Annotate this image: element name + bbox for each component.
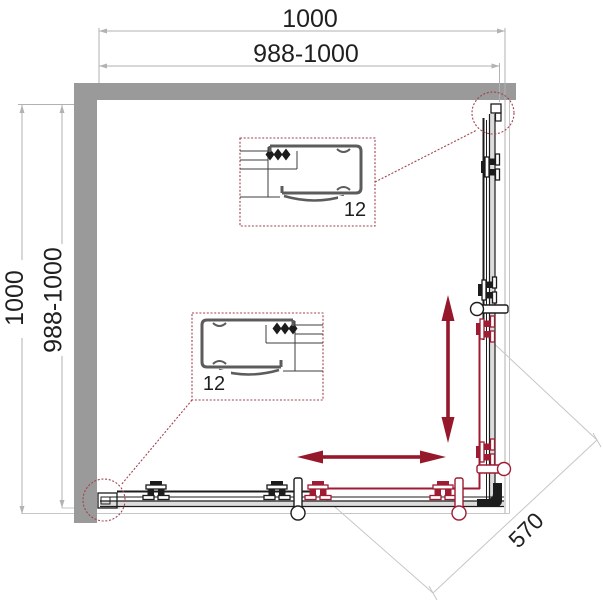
profile-section-lower xyxy=(202,320,323,375)
handle-right-red xyxy=(477,463,511,476)
detail-box-upper: 12 xyxy=(240,138,375,226)
leader-lower xyxy=(121,400,192,485)
diagram-canvas: 1000 988-1000 1000 988-1000 570 xyxy=(0,0,603,600)
detail-label-lower: 12 xyxy=(203,373,225,395)
handle-bottom-black xyxy=(291,478,305,520)
detail-box-lower: 12 xyxy=(192,313,323,400)
detail-label-upper: 12 xyxy=(344,199,366,221)
slide-arrow-vertical xyxy=(442,295,455,443)
dim-left-inner: 988-1000 xyxy=(40,105,68,508)
leader-upper xyxy=(375,130,477,182)
dim-top-inner-label: 988-1000 xyxy=(253,40,359,68)
profile-section-upper xyxy=(240,146,361,201)
wall-top xyxy=(74,83,516,100)
dim-top-outer-label: 1000 xyxy=(282,5,338,33)
dim-left-inner-label: 988-1000 xyxy=(40,247,68,353)
wall-left xyxy=(74,83,97,523)
handle-right-black xyxy=(471,303,509,316)
slide-arrow-horizontal xyxy=(297,451,446,464)
dim-diagonal-opening: 570 xyxy=(327,337,601,600)
dim-left-outer-label: 1000 xyxy=(1,270,29,326)
dim-diagonal-label: 570 xyxy=(503,507,549,553)
dim-top-outer: 1000 xyxy=(99,5,505,513)
shower-enclosure-diagram: 1000 988-1000 1000 988-1000 570 xyxy=(0,0,603,600)
